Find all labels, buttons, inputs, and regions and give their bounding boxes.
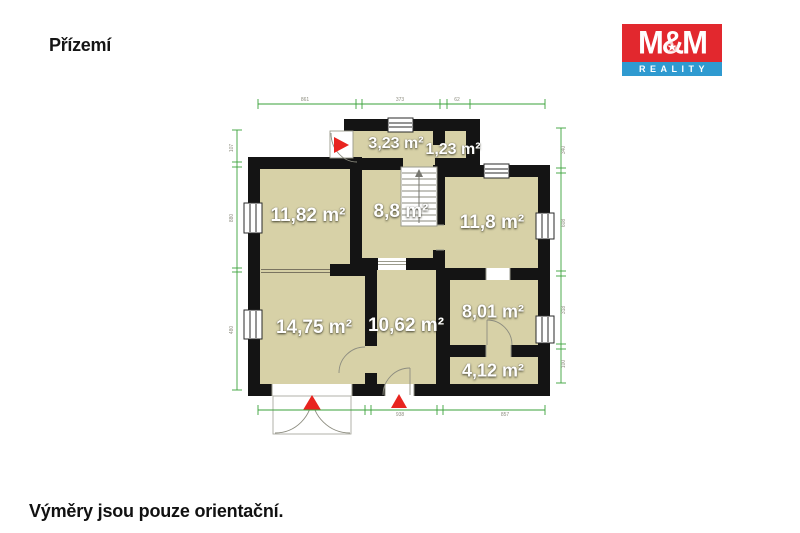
room-area-label: 3,23 m² bbox=[368, 135, 423, 153]
dim-label: 318 bbox=[561, 306, 567, 315]
dim-label: 861 bbox=[301, 97, 310, 103]
dim-label: 107 bbox=[229, 144, 235, 153]
disclaimer-note: Výměry jsou pouze orientační. bbox=[29, 501, 283, 522]
floorplan-page: Přízemí M&M ★ REALITY bbox=[0, 0, 800, 533]
room-area-label: 14,75 m² bbox=[276, 317, 352, 339]
floorplan-drawing: 861 373 62 107 880 480 340 608 318 100 9… bbox=[0, 0, 800, 533]
room-area-label: 10,62 m² bbox=[368, 315, 444, 337]
dim-label: 373 bbox=[396, 97, 405, 103]
dim-label: 880 bbox=[229, 214, 235, 223]
room-area-label: 1,23 m² bbox=[425, 141, 480, 159]
dim-label: 100 bbox=[561, 360, 567, 369]
room-area-label: 11,8 m² bbox=[460, 212, 524, 234]
entrance-arrow-icon bbox=[303, 395, 321, 410]
entrance-arrow-icon bbox=[391, 394, 407, 408]
dim-label: 62 bbox=[454, 97, 460, 103]
dim-label: 480 bbox=[229, 326, 235, 335]
dim-label: 340 bbox=[561, 146, 567, 155]
room-area-label: 4,12 m² bbox=[462, 361, 524, 382]
dim-label: 608 bbox=[561, 219, 567, 228]
dim-label: 938 bbox=[396, 412, 405, 418]
room-area-label: 8,8 m² bbox=[374, 201, 429, 223]
dim-label: 857 bbox=[501, 412, 510, 418]
room-area-label: 11,82 m² bbox=[271, 205, 346, 227]
room-area-label: 8,01 m² bbox=[462, 302, 524, 323]
